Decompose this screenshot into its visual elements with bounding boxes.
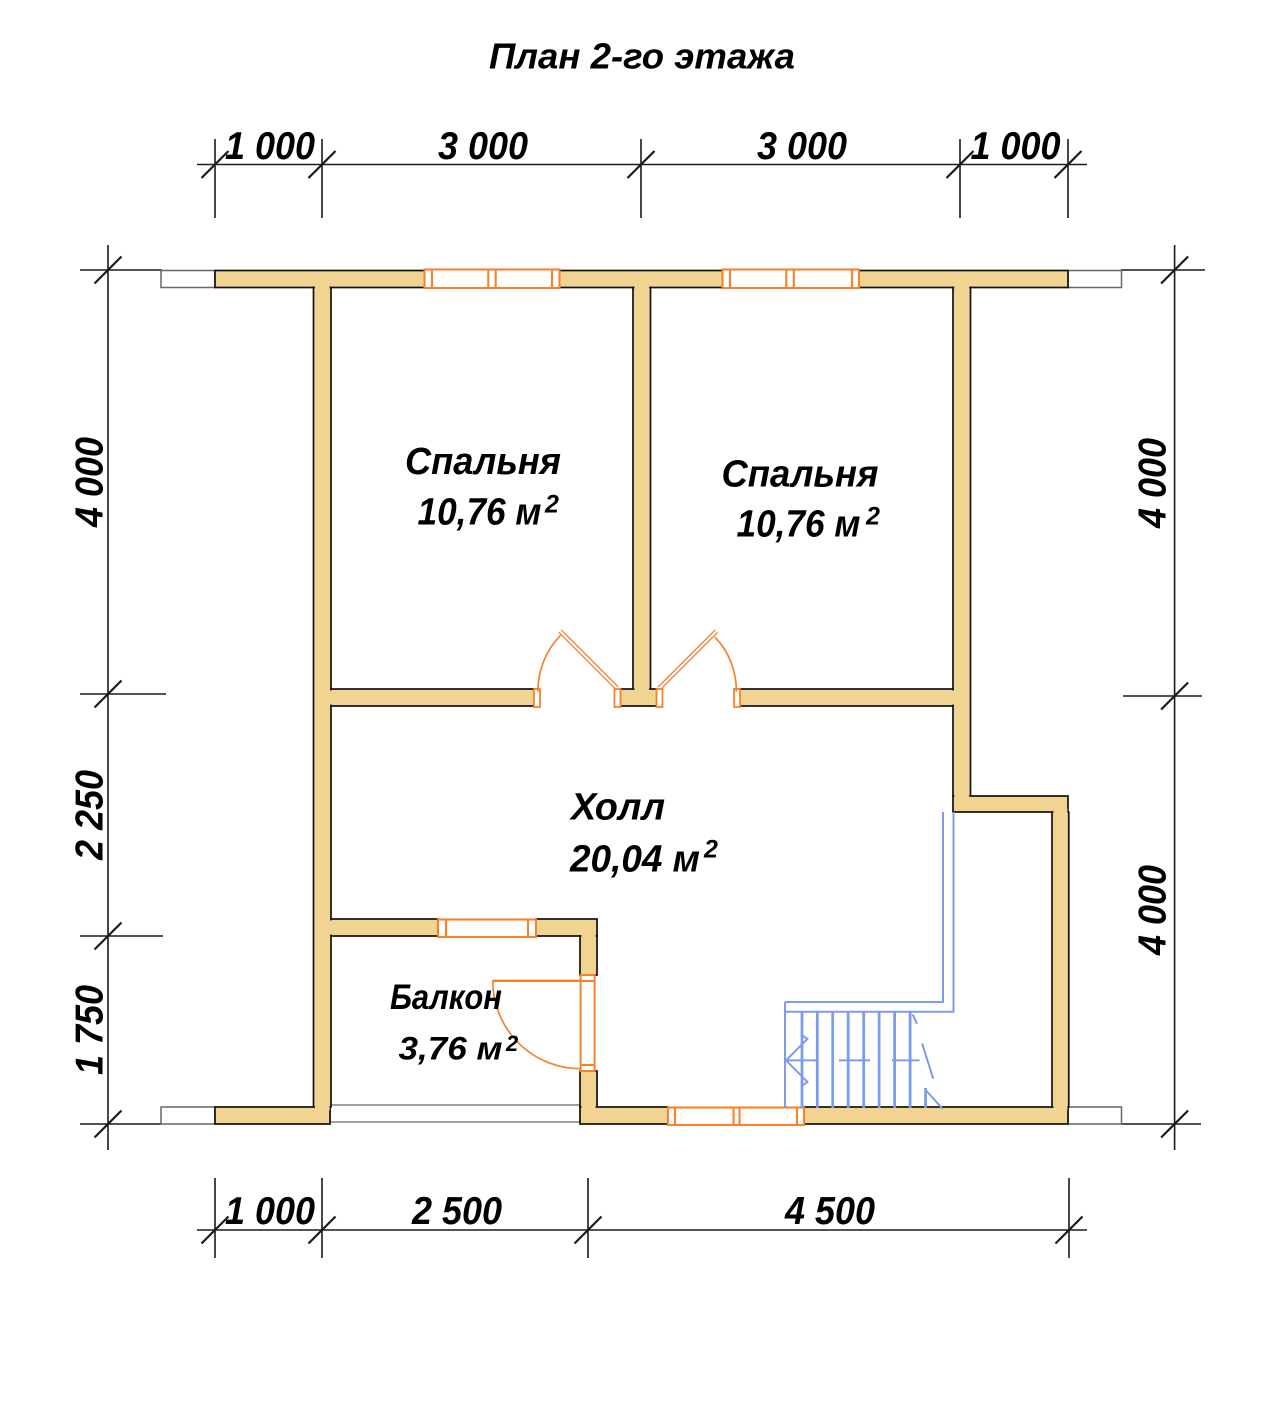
- svg-text:4 000: 4 000: [69, 437, 112, 528]
- svg-text:1 000: 1 000: [225, 1190, 315, 1233]
- svg-text:1 750: 1 750: [69, 985, 112, 1075]
- svg-text:20,04 м: 20,04 м: [569, 839, 700, 881]
- svg-text:2: 2: [703, 836, 718, 864]
- svg-text:2: 2: [544, 491, 559, 519]
- svg-text:3 000: 3 000: [757, 125, 847, 168]
- svg-text:План 2-го этажа: План 2-го этажа: [489, 36, 795, 77]
- svg-text:Холл: Холл: [569, 787, 665, 829]
- svg-text:10,76 м: 10,76 м: [737, 504, 861, 546]
- svg-text:2 500: 2 500: [411, 1190, 502, 1233]
- svg-text:3,76 м: 3,76 м: [399, 1031, 503, 1067]
- svg-text:1 000: 1 000: [971, 125, 1061, 168]
- svg-text:10,76 м: 10,76 м: [418, 492, 542, 534]
- svg-text:3 000: 3 000: [438, 125, 528, 168]
- svg-text:4 000: 4 000: [1132, 438, 1175, 529]
- svg-text:4 500: 4 500: [784, 1190, 875, 1233]
- svg-text:2: 2: [865, 503, 880, 531]
- svg-text:Спальня: Спальня: [405, 441, 561, 483]
- svg-text:2 250: 2 250: [69, 770, 112, 861]
- svg-text:Спальня: Спальня: [722, 454, 879, 496]
- svg-text:2: 2: [505, 1031, 519, 1056]
- svg-text:1 000: 1 000: [225, 125, 315, 168]
- svg-text:4 000: 4 000: [1132, 865, 1175, 956]
- svg-text:Балкон: Балкон: [390, 978, 502, 1017]
